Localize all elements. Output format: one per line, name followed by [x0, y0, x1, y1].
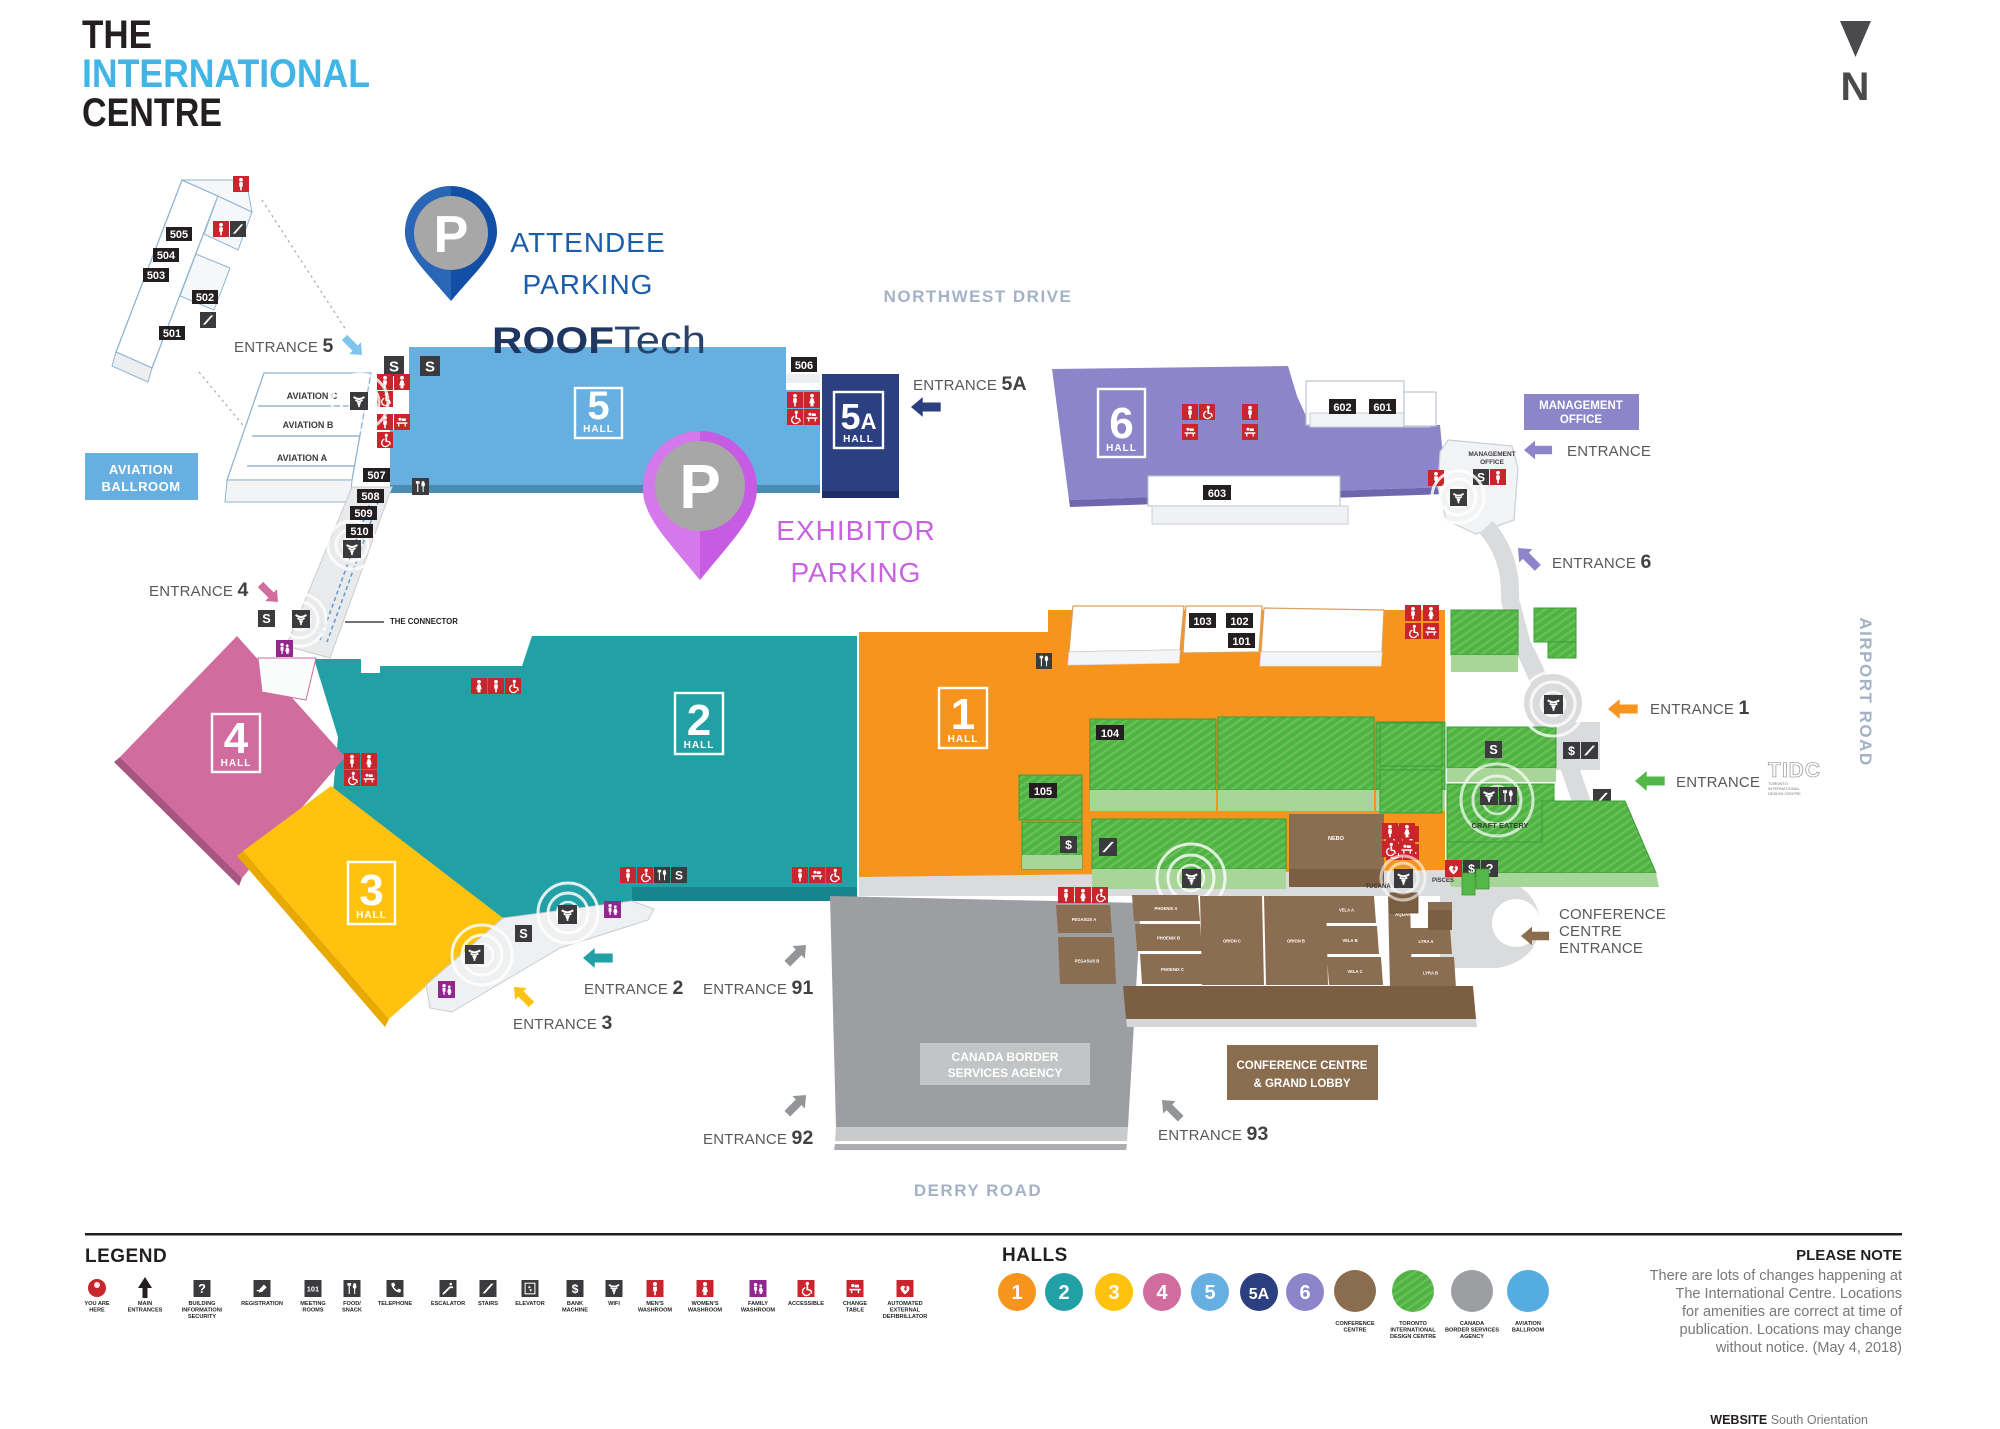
svg-text:ENTRANCE 91: ENTRANCE 91: [703, 977, 814, 999]
svg-text:NORTHWEST DRIVE: NORTHWEST DRIVE: [884, 287, 1073, 306]
svg-text:AVIATION: AVIATION: [1515, 1321, 1541, 1327]
svg-text:CENTRE: CENTRE: [82, 91, 222, 135]
svg-text:EXHIBITOR: EXHIBITOR: [776, 515, 935, 546]
svg-text:Tech: Tech: [614, 320, 706, 362]
svg-text:INTERNATIONAL: INTERNATIONAL: [82, 52, 370, 96]
svg-text:PLEASE NOTE: PLEASE NOTE: [1796, 1247, 1902, 1264]
svg-text:4: 4: [1156, 1282, 1168, 1304]
svg-text:ESCALATOR: ESCALATOR: [431, 1301, 465, 1307]
svg-text:HALL: HALL: [583, 424, 614, 435]
svg-text:PARKING: PARKING: [791, 557, 922, 588]
svg-text:THE CONNECTOR: THE CONNECTOR: [390, 617, 458, 626]
svg-text:PISCES: PISCES: [1432, 878, 1454, 884]
svg-text:508: 508: [361, 491, 379, 503]
svg-text:DERRY ROAD: DERRY ROAD: [914, 1181, 1042, 1200]
svg-text:HALL: HALL: [684, 740, 715, 751]
svg-text:AVIATION A: AVIATION A: [277, 453, 328, 463]
svg-text:& GRAND LOBBY: & GRAND LOBBY: [1253, 1078, 1350, 1090]
svg-text:FAMILY: FAMILY: [748, 1301, 768, 1307]
svg-text:ENTRANCE: ENTRANCE: [1559, 940, 1643, 957]
svg-text:PARKING: PARKING: [523, 269, 654, 300]
svg-text:SERVICES AGENCY: SERVICES AGENCY: [948, 1066, 1063, 1080]
svg-text:PHOENIX A: PHOENIX A: [1155, 906, 1178, 911]
svg-text:DEFIBRILLATOR: DEFIBRILLATOR: [883, 1314, 928, 1320]
svg-text:601: 601: [1373, 402, 1391, 414]
svg-text:AVIATION B: AVIATION B: [283, 420, 334, 430]
svg-text:MEETING: MEETING: [300, 1301, 325, 1307]
svg-text:ENTRANCE: ENTRANCE: [1676, 774, 1760, 791]
svg-text:504: 504: [157, 250, 176, 262]
svg-text:AIRPORT ROAD: AIRPORT ROAD: [1856, 617, 1875, 766]
svg-text:ENTRANCE: ENTRANCE: [1567, 443, 1651, 460]
svg-text:5: 5: [587, 384, 609, 428]
svg-text:6: 6: [1299, 1282, 1310, 1304]
svg-text:ENTRANCE 6: ENTRANCE 6: [1552, 551, 1652, 573]
svg-text:ORION B: ORION B: [1287, 939, 1305, 944]
svg-text:ENTRANCE 1: ENTRANCE 1: [1650, 697, 1750, 719]
svg-text:INFORMATION/: INFORMATION/: [182, 1308, 223, 1314]
svg-text:AGENCY: AGENCY: [1460, 1334, 1484, 1340]
svg-text:MANAGEMENT: MANAGEMENT: [1468, 451, 1515, 458]
svg-text:TELEPHONE: TELEPHONE: [378, 1301, 412, 1307]
svg-text:P: P: [434, 206, 469, 264]
svg-text:602: 602: [1333, 402, 1351, 414]
svg-text:HALL: HALL: [843, 434, 874, 445]
svg-text:3: 3: [359, 866, 383, 915]
svg-text:VELA A: VELA A: [1339, 908, 1354, 913]
svg-text:CENTRE: CENTRE: [1559, 923, 1622, 940]
svg-text:102: 102: [1230, 616, 1248, 628]
svg-text:DESIGN CENTRE: DESIGN CENTRE: [1768, 791, 1801, 796]
svg-text:PEGASUS B: PEGASUS B: [1075, 959, 1100, 964]
svg-text:LEGEND: LEGEND: [85, 1246, 167, 1267]
svg-text:PEGASUS A: PEGASUS A: [1072, 917, 1097, 922]
svg-text:DESIGN CENTRE: DESIGN CENTRE: [1390, 1334, 1436, 1340]
svg-text:510: 510: [350, 526, 368, 538]
svg-text:TABLE: TABLE: [846, 1308, 864, 1314]
svg-text:506: 506: [795, 360, 813, 372]
svg-text:publication. Locations may cha: publication. Locations may change: [1680, 1322, 1902, 1338]
svg-text:MAIN: MAIN: [138, 1301, 152, 1307]
svg-text:OFFICE: OFFICE: [1560, 414, 1602, 426]
svg-text:503: 503: [147, 270, 165, 282]
svg-text:OFFICE: OFFICE: [1480, 459, 1504, 466]
svg-text:ENTRANCE 2: ENTRANCE 2: [584, 977, 684, 999]
svg-text:WOMEN'S: WOMEN'S: [691, 1301, 718, 1307]
svg-text:VELA B: VELA B: [1342, 938, 1357, 943]
svg-text:WASHROOM: WASHROOM: [688, 1308, 723, 1314]
svg-text:PHOENIX B: PHOENIX B: [1157, 936, 1180, 941]
svg-text:105: 105: [1034, 786, 1052, 798]
svg-text:TIDC: TIDC: [1768, 759, 1821, 782]
svg-text:NEBO: NEBO: [1328, 836, 1345, 842]
svg-text:5: 5: [1204, 1282, 1215, 1304]
svg-text:2: 2: [687, 696, 711, 745]
svg-text:ROOF: ROOF: [492, 320, 614, 361]
svg-text:CHANGE: CHANGE: [843, 1301, 868, 1307]
svg-text:ENTRANCE 4: ENTRANCE 4: [149, 579, 249, 601]
svg-text:P: P: [679, 453, 720, 522]
svg-text:ENTRANCE 3: ENTRANCE 3: [513, 1012, 613, 1034]
svg-text:5A: 5A: [1249, 1286, 1270, 1303]
svg-text:505: 505: [170, 229, 188, 241]
svg-text:ELEVATOR: ELEVATOR: [515, 1301, 545, 1307]
svg-text:HALL: HALL: [1106, 443, 1137, 454]
svg-text:CANADA: CANADA: [1460, 1321, 1484, 1327]
svg-text:VELA C: VELA C: [1347, 969, 1362, 974]
svg-text:EXTERNAL: EXTERNAL: [890, 1308, 921, 1314]
svg-text:1: 1: [951, 690, 975, 739]
svg-text:CANADA BORDER: CANADA BORDER: [952, 1050, 1059, 1064]
svg-text:507: 507: [367, 470, 385, 482]
svg-text:REGISTRATION: REGISTRATION: [241, 1301, 283, 1307]
svg-text:CONFERENCE: CONFERENCE: [1335, 1321, 1374, 1327]
svg-text:ATTENDEE: ATTENDEE: [510, 227, 665, 258]
svg-text:AVIATION C: AVIATION C: [287, 391, 338, 401]
svg-text:ROOMS: ROOMS: [302, 1308, 323, 1314]
svg-text:STAIRS: STAIRS: [478, 1301, 498, 1307]
svg-text:ENTRANCE 93: ENTRANCE 93: [1158, 1123, 1269, 1145]
svg-text:LYRA B: LYRA B: [1423, 971, 1438, 976]
svg-text:TORONTO: TORONTO: [1399, 1321, 1427, 1327]
svg-text:AVIATION: AVIATION: [109, 462, 173, 477]
svg-text:THE: THE: [82, 13, 152, 57]
svg-text:WEBSITE South Orientation: WEBSITE South Orientation: [1710, 1413, 1868, 1427]
svg-text:509: 509: [354, 508, 372, 520]
svg-text:ENTRANCE 92: ENTRANCE 92: [703, 1127, 814, 1149]
svg-text:502: 502: [196, 292, 214, 304]
svg-text:HALL: HALL: [221, 758, 252, 769]
svg-text:HERE: HERE: [89, 1308, 105, 1314]
svg-text:WASHROOM: WASHROOM: [638, 1308, 673, 1314]
svg-text:CRAFT EATERY: CRAFT EATERY: [1471, 821, 1528, 830]
svg-text:ORION C: ORION C: [1223, 939, 1241, 944]
svg-text:104: 104: [1101, 728, 1120, 740]
svg-text:MEN'S: MEN'S: [646, 1301, 664, 1307]
svg-text:MACHINE: MACHINE: [562, 1308, 588, 1314]
svg-text:103: 103: [1193, 616, 1211, 628]
svg-text:1: 1: [1011, 1282, 1022, 1304]
svg-text:INTERNATIONAL: INTERNATIONAL: [1390, 1328, 1436, 1334]
svg-text:N: N: [1841, 65, 1870, 109]
svg-text:BUILDING: BUILDING: [188, 1301, 215, 1307]
svg-text:PHOENIX C: PHOENIX C: [1161, 967, 1184, 972]
svg-text:HALL: HALL: [948, 734, 979, 745]
svg-text:SECURITY: SECURITY: [188, 1314, 217, 1320]
svg-text:WIFI: WIFI: [608, 1301, 620, 1307]
svg-text:FOOD/: FOOD/: [343, 1301, 361, 1307]
svg-text:without notice. (May 4, 2018): without notice. (May 4, 2018): [1715, 1340, 1902, 1356]
svg-text:SNACK: SNACK: [342, 1308, 362, 1314]
svg-text:3: 3: [1108, 1282, 1119, 1304]
svg-text:HALL: HALL: [356, 910, 387, 921]
svg-text:501: 501: [163, 328, 181, 340]
svg-text:603: 603: [1208, 488, 1226, 500]
svg-text:ACCESSIBLE: ACCESSIBLE: [788, 1301, 824, 1307]
svg-text:MANAGEMENT: MANAGEMENT: [1539, 400, 1623, 412]
svg-text:101: 101: [1232, 636, 1250, 648]
svg-text:ENTRANCE 5: ENTRANCE 5: [234, 335, 334, 357]
svg-text:AUTOMATED: AUTOMATED: [887, 1301, 922, 1307]
svg-text:YOU ARE: YOU ARE: [84, 1301, 110, 1307]
svg-text:The International Centre. Loca: The International Centre. Locations: [1676, 1286, 1903, 1302]
svg-text:BANK: BANK: [567, 1301, 583, 1307]
svg-text:BORDER SERVICES: BORDER SERVICES: [1445, 1328, 1499, 1334]
svg-text:ENTRANCES: ENTRANCES: [128, 1308, 163, 1314]
svg-text:CENTRE: CENTRE: [1344, 1328, 1367, 1334]
svg-text:6: 6: [1109, 399, 1133, 448]
svg-text:BALLROOM: BALLROOM: [1512, 1328, 1545, 1334]
svg-text:CONFERENCE: CONFERENCE: [1559, 906, 1666, 923]
svg-text:BALLROOM: BALLROOM: [101, 479, 180, 494]
svg-text:CONFERENCE CENTRE: CONFERENCE CENTRE: [1237, 1060, 1368, 1072]
svg-text:WASHROOM: WASHROOM: [741, 1308, 776, 1314]
svg-text:HALLS: HALLS: [1002, 1245, 1068, 1266]
svg-text:ENTRANCE 5A: ENTRANCE 5A: [913, 373, 1027, 395]
svg-text:for amenities are correct at t: for amenities are correct at time of: [1682, 1304, 1903, 1320]
svg-text:LYRA A: LYRA A: [1419, 939, 1434, 944]
svg-text:2: 2: [1058, 1282, 1069, 1304]
svg-text:There are lots of changes happ: There are lots of changes happening at: [1650, 1268, 1902, 1284]
svg-text:4: 4: [224, 714, 249, 763]
svg-text:TUCANA: TUCANA: [1365, 884, 1391, 890]
